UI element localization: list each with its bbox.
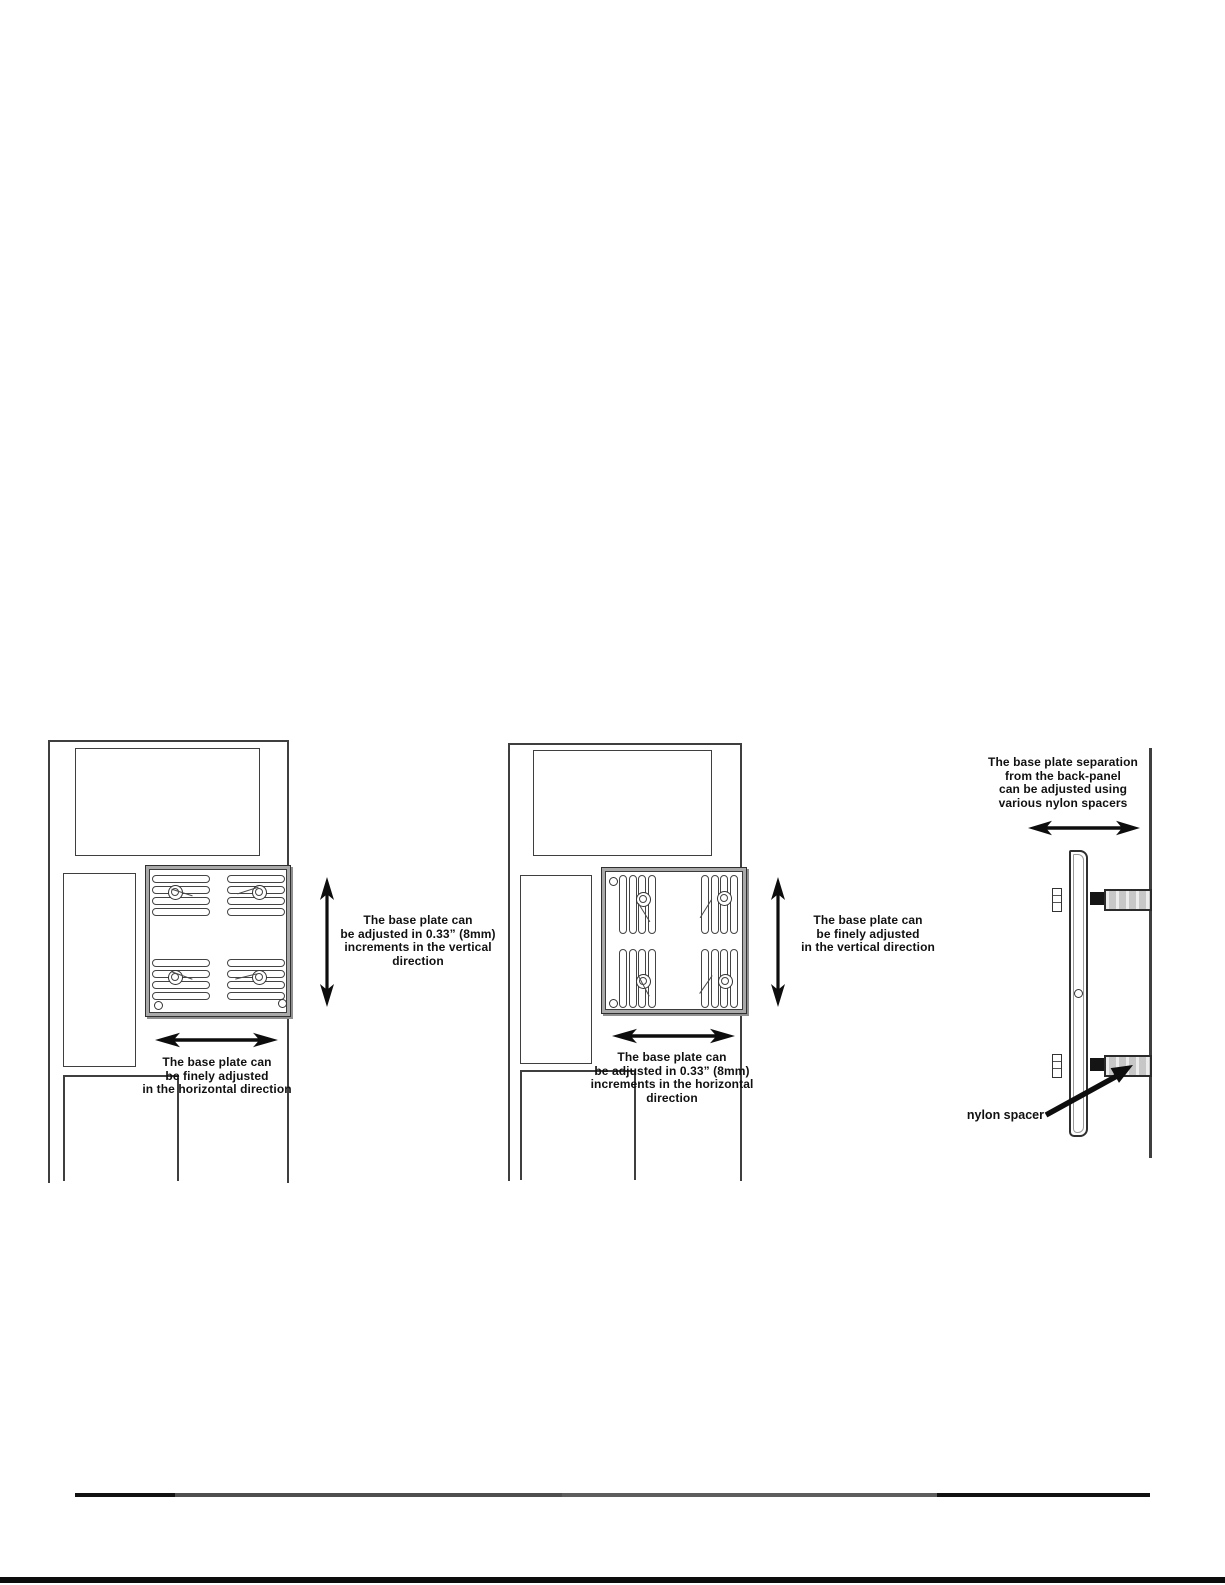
middle-vertical-note: The base plate can be finely adjusted in… [768, 914, 968, 955]
left-panel-left-edge [48, 740, 50, 1183]
plate-screw [718, 974, 733, 989]
plate-corner-hole [278, 999, 287, 1008]
base-plate-front-vertical-slots [601, 867, 747, 1014]
note-line: various nylon spacers [999, 797, 1128, 811]
note-line: be adjusted in 0.33” (8mm) [594, 1065, 749, 1079]
plate-slot [152, 875, 210, 883]
back-panel-edge [1149, 748, 1152, 1158]
left-horizontal-note: The base plate can be finely adjusted in… [117, 1056, 317, 1097]
note-line: The base plate can [363, 914, 472, 928]
screw-side-view [1052, 888, 1062, 912]
note-line: be adjusted in 0.33” (8mm) [340, 928, 495, 942]
plate-slot [152, 992, 210, 1000]
note-line: direction [392, 955, 444, 969]
plate-screw-center [720, 894, 728, 902]
note-line: The base plate can [813, 914, 922, 928]
note-line: increments in the vertical [344, 941, 491, 955]
plate-screw [252, 970, 267, 985]
plate-screw [717, 891, 732, 906]
middle-panel-step-left-edge [520, 1070, 522, 1180]
note-line: The base plate can [617, 1051, 726, 1065]
plate-corner-hole [609, 877, 618, 886]
separation-note: The base plate separation from the back-… [963, 756, 1163, 810]
page-bottom-bar [0, 1577, 1225, 1583]
note-line: be finely adjusted [816, 928, 919, 942]
plate-slot [227, 959, 285, 967]
nylon-spacer-label: nylon spacer [944, 1108, 1044, 1122]
note-line: from the back-panel [1005, 770, 1121, 784]
plate-slot [227, 992, 285, 1000]
note-line: in the horizontal direction [142, 1083, 291, 1097]
plate-slot [648, 875, 656, 934]
spacer-callout-arrow [1042, 1060, 1137, 1122]
horizontal-double-arrow [1028, 817, 1140, 839]
left-panel-top-edge [48, 740, 289, 742]
left-panel-side-column [63, 873, 136, 1067]
note-line: The base plate can [162, 1056, 271, 1070]
plate-screw-center [639, 895, 647, 903]
plate-slot [152, 897, 210, 905]
plate-slot [629, 875, 637, 934]
middle-panel-window [533, 750, 712, 856]
plate-screw [252, 885, 267, 900]
note-line: in the vertical direction [801, 941, 935, 955]
plate-corner-hole [609, 999, 618, 1008]
plate-corner-hole [154, 1001, 163, 1010]
note-line: increments in the horizontal [591, 1078, 754, 1092]
plate-slot [619, 949, 627, 1008]
screw-head [1090, 892, 1104, 905]
manual-page: The base plate can be adjusted in 0.33” … [0, 0, 1225, 1585]
left-panel-step-left-edge [63, 1075, 65, 1181]
note-line: be finely adjusted [165, 1070, 268, 1084]
left-vertical-note: The base plate can be adjusted in 0.33” … [318, 914, 518, 968]
plate-slot [227, 908, 285, 916]
middle-panel-top-edge [508, 743, 742, 745]
plate-slot [152, 908, 210, 916]
side-plate-hole [1074, 989, 1083, 998]
note-line: direction [646, 1092, 698, 1106]
left-panel-window [75, 748, 260, 856]
horizontal-double-arrow [612, 1025, 735, 1047]
note-line: The base plate separation [988, 756, 1138, 770]
plate-slot [619, 875, 627, 934]
middle-panel-side-column [520, 875, 592, 1064]
horizontal-double-arrow [155, 1029, 278, 1051]
note-line: can be adjusted using [999, 783, 1127, 797]
plate-slot [152, 959, 210, 967]
plate-slot [701, 949, 709, 1008]
nylon-spacer-top [1104, 889, 1152, 911]
footer-rule [75, 1493, 1150, 1497]
plate-screw-center [721, 977, 729, 985]
base-plate-front-horizontal-slots [145, 865, 291, 1017]
plate-slot [711, 875, 719, 934]
plate-slot [730, 875, 738, 934]
middle-panel-left-edge [508, 743, 510, 1181]
plate-screw-center [255, 888, 263, 896]
plate-slot [227, 875, 285, 883]
middle-horizontal-note: The base plate can be adjusted in 0.33” … [572, 1051, 772, 1105]
